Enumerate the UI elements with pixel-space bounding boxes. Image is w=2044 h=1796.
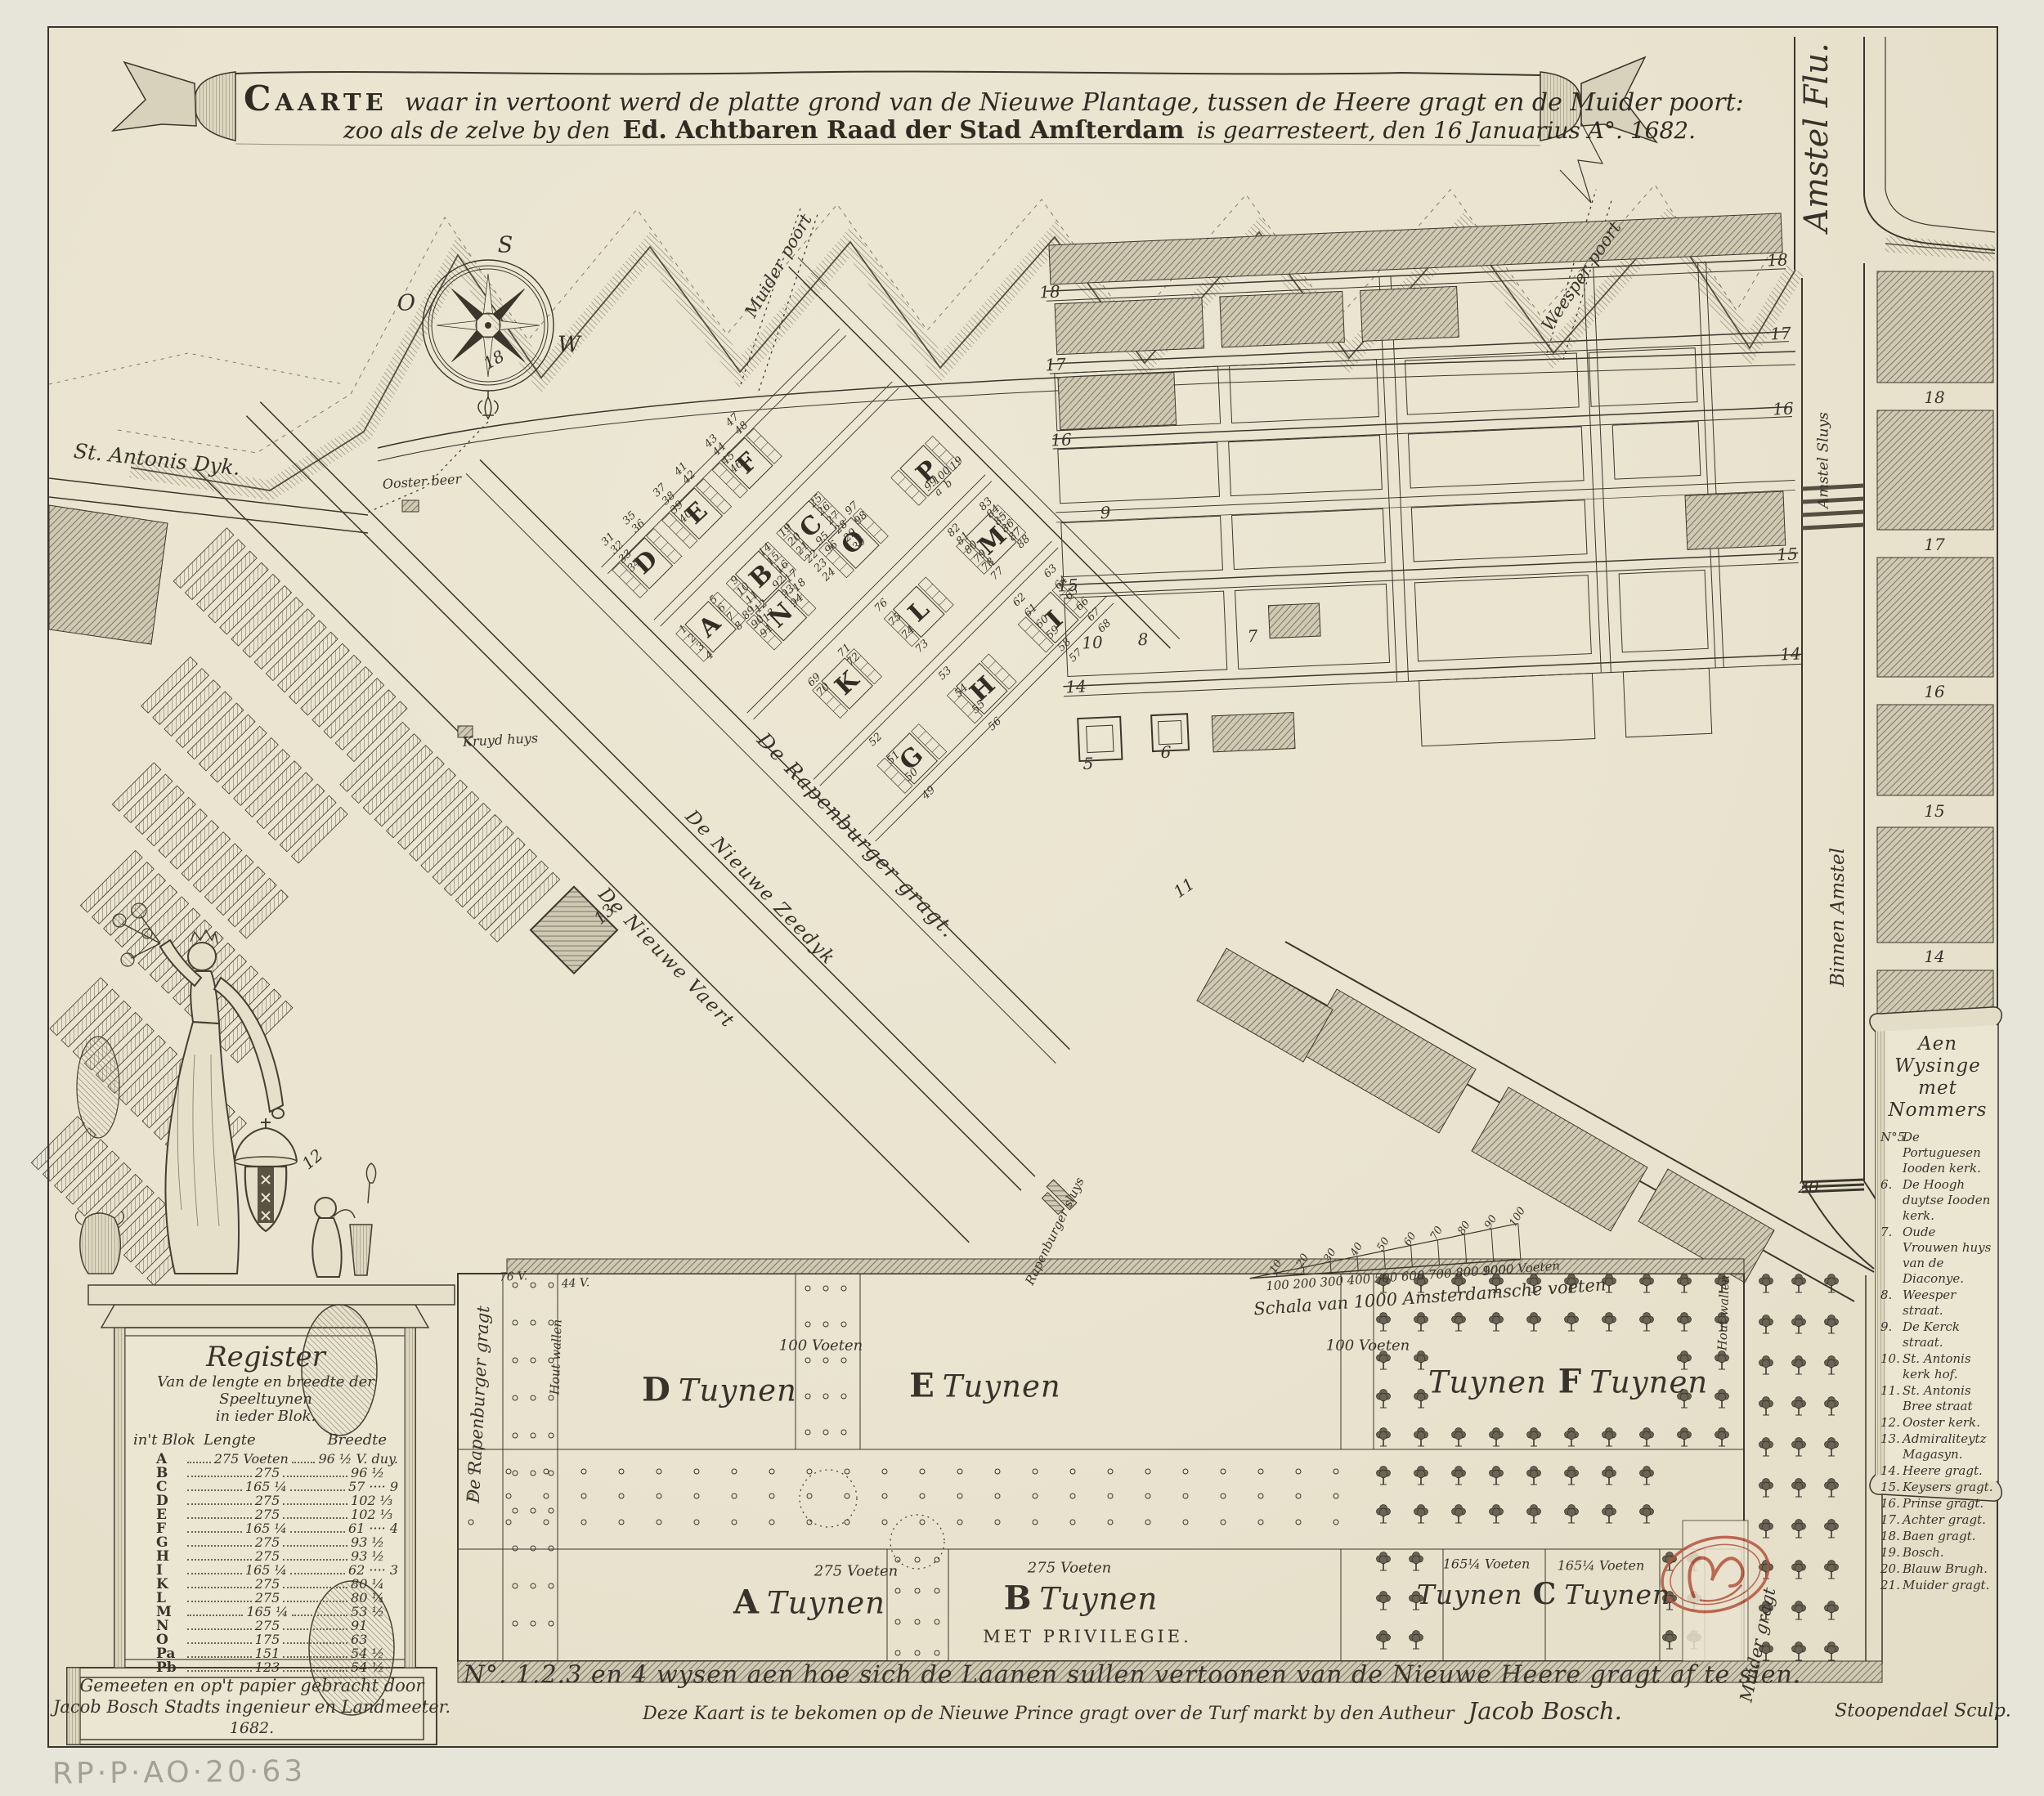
street-number: 14 [1780, 643, 1802, 664]
legend-item: N°5.De Portuguesen Iooden kerk. [1880, 1130, 1995, 1176]
scale-tick-label: 800 [1455, 1264, 1479, 1280]
title-line2-script-b: is gearresteert, den 16 Januarius A°. 16… [1197, 117, 1696, 144]
garden-a-letter: A [733, 1583, 759, 1622]
register-row: D275102 ⅓ [133, 1494, 398, 1507]
street-number: 20 [1798, 1177, 1818, 1197]
register-row: K27580 ¼ [133, 1577, 398, 1591]
register-subtitle-1: Van de lengte en breedte der Speeltuynen [133, 1373, 398, 1408]
register-subtitle-2: in ieder Blok. [133, 1408, 398, 1425]
label-amstel-sluys: Amstel Sluys [1815, 412, 1832, 508]
street-number: 16 [1924, 682, 1944, 701]
sculptor-credit: Stoopendael Sculp. [1835, 1701, 2011, 1722]
street-number: 9 [1100, 503, 1111, 523]
legend-item: 6.De Hoogh duytse Iooden kerk. [1880, 1177, 1995, 1224]
register-row: Pb12354 ½ [133, 1660, 398, 1674]
measure-275voeten-b: 275 Voeten [1028, 1560, 1111, 1577]
engraved-map-sheet: Caarte waar in vertoont werd de platte g… [0, 0, 2044, 1796]
measure-100voeten-1: 100 Voeten [779, 1337, 863, 1355]
pedestal-inscription: Gemeeten en op't papier gebracht door Ja… [53, 1675, 450, 1739]
register-title: Register [133, 1341, 398, 1373]
street-number: 15 [1777, 544, 1799, 564]
garden-e-word: Tuynen [943, 1369, 1061, 1404]
register-row: I165 ¼62 ···· 3 [133, 1563, 398, 1577]
legend-title-1: Aen Wysinge [1880, 1033, 1995, 1077]
street-number: 18 [1039, 281, 1061, 302]
label-hout-wallen-right: Hout wallen [1715, 1274, 1732, 1350]
legend-item: 16.Prinse gragt. [1880, 1496, 1995, 1512]
legend-item: 17.Achter gragt. [1880, 1512, 1995, 1528]
register-row: F165 ¼61 ···· 4 [133, 1521, 398, 1535]
compass-letter-w: W [558, 333, 580, 358]
garden-a-tuynen: ATuynen [733, 1583, 885, 1622]
legend-item: 11.St. Antonis Bree straat [1880, 1383, 1995, 1414]
legend-item: 21.Muider gragt. [1880, 1578, 1995, 1593]
label-binnen-amstel: Binnen Amstel [1827, 848, 1849, 987]
garden-c-letter: C [1533, 1577, 1557, 1611]
garden-e-tuynen: ETuynen [909, 1367, 1060, 1405]
register-col-breedte: Breedte [302, 1431, 398, 1449]
legend-item: 19.Bosch. [1880, 1545, 1995, 1561]
scale-tick-label: 100 [1266, 1277, 1290, 1293]
street-number: 17 [1770, 323, 1792, 343]
map-title-line1: Caarte waar in vertoont werd de platte g… [244, 78, 1744, 119]
garden-a-word: Tuynen [767, 1586, 885, 1621]
map-title-line2: zoo als de zelve by den Ed. Achtbaren Ra… [343, 116, 1696, 145]
street-number: 10 [1082, 632, 1104, 652]
measure-44v: 44 V. [561, 1276, 589, 1291]
register-row: G27593 ½ [133, 1535, 398, 1549]
street-number: 18 [1767, 249, 1789, 270]
register-col-lengte: Lengte [204, 1431, 302, 1449]
label-hout-wallen-left: Hout wallen [547, 1319, 564, 1395]
street-number: 15 [1924, 801, 1944, 821]
register-header: in't Blok Lengte Breedte [133, 1431, 398, 1449]
garden-c-tuynen: TuynenCTuynen [1417, 1577, 1671, 1611]
register-row: H27593 ½ [133, 1549, 398, 1563]
register-row: N27591 [133, 1619, 398, 1633]
register-row: B27596 ½ [133, 1466, 398, 1480]
street-number: 18 [1924, 387, 1944, 407]
scale-tick-label: 300 [1320, 1274, 1344, 1290]
register-row: C165 ¼57 ···· 9 [133, 1480, 398, 1494]
street-number: 14 [1065, 676, 1087, 696]
measure-275voeten-a: 275 Voeten [814, 1563, 898, 1580]
title-line2-script-a: zoo als de zelve by den [343, 117, 610, 144]
register-row: L27580 ¼ [133, 1591, 398, 1605]
register-rows: A275 Voeten96 ½ V. duy.B27596 ½C165 ¼57 … [133, 1452, 398, 1674]
compass-letter-s: S [498, 233, 513, 258]
inventory-number-handwritten: RP·P·AO·20·63 [52, 1754, 307, 1790]
compass-letter-o: O [397, 291, 415, 316]
register-panel: Register Van de lengte en breedte der Sp… [133, 1341, 398, 1674]
legend-item: 12.Ooster kerk. [1880, 1415, 1995, 1431]
garden-e-letter: E [909, 1367, 935, 1405]
register-row: Pa15154 ½ [133, 1646, 398, 1660]
street-number: 17 [1045, 354, 1067, 374]
legend-item: 18.Baen gragt. [1880, 1529, 1995, 1544]
register-row: A275 Voeten96 ½ V. duy. [133, 1452, 398, 1466]
street-number: 5 [1083, 754, 1094, 773]
bottom-caption-line2-text: Deze Kaart is te bekomen op de Nieuwe Pr… [643, 1704, 1454, 1724]
legend-item: 10.St. Antonis kerk hof. [1880, 1351, 1995, 1382]
legend-item: 7.Oude Vrouwen huys van de Diaconye. [1880, 1225, 1995, 1287]
bottom-caption-line2: Deze Kaart is te bekomen op de Nieuwe Pr… [643, 1697, 1622, 1725]
title-line1-text: waar in vertoont werd de platte grond va… [405, 88, 1744, 117]
scale-tick-label: 500 [1374, 1270, 1398, 1286]
register-row: E275102 ⅓ [133, 1507, 398, 1521]
street-number: 16 [1051, 429, 1073, 450]
pedestal-inscription-year: 1682. [53, 1718, 450, 1739]
title-line2-roman: Ed. Achtbaren Raad der Stad Amſterdam [623, 116, 1185, 145]
legend-title-2: met Nommers [1880, 1077, 1995, 1122]
register-col-blok: in't Blok [133, 1431, 204, 1449]
street-number: 7 [1247, 626, 1258, 647]
garden-c-word: Tuynen [1564, 1579, 1670, 1610]
scale-tick-label: 700 [1428, 1266, 1452, 1283]
garden-f-tuynen: TuynenFTuynen [1428, 1363, 1708, 1401]
garden-privilege-note: MET PRIVILEGIE. [983, 1627, 1192, 1646]
scale-tick-label: 200 [1293, 1275, 1317, 1292]
pedestal-inscription-line1: Gemeeten en op't papier gebracht door [53, 1675, 450, 1696]
garden-f-pre-word: Tuynen [1428, 1365, 1547, 1400]
measure-165voeten-1: 165¼ Voeten [1443, 1556, 1531, 1572]
label-amstel-river: Amstel Flu. [1798, 43, 1836, 232]
garden-d-tuynen: DTuynen [642, 1371, 797, 1409]
legend-item: 14.Heere gragt. [1880, 1463, 1995, 1479]
legend-item: 20.Blauw Brugh. [1880, 1561, 1995, 1577]
legend-item: 9.De Kerck straat. [1880, 1319, 1995, 1350]
garden-d-word: Tuynen [679, 1373, 797, 1409]
pedestal-inscription-line2: Jacob Bosch Stadts ingenieur en Landmeet… [53, 1696, 450, 1718]
scale-tick-label: 600 [1401, 1268, 1425, 1284]
legend-panel: Aen Wysinge met Nommers N°5.De Portugues… [1880, 1033, 1995, 1593]
legend-item: 13.Admiraliteytz Magasyn. [1880, 1431, 1995, 1462]
street-number: 16 [1773, 398, 1795, 419]
street-number: 8 [1137, 629, 1149, 650]
street-number: 14 [1924, 947, 1944, 966]
legend-item: 8.Weesper straat. [1880, 1288, 1995, 1319]
garden-c-pre-word: Tuynen [1417, 1579, 1523, 1610]
measure-165voeten-2: 165¼ Voeten [1558, 1558, 1645, 1574]
measure-76v: 76 V. [499, 1270, 527, 1284]
bottom-caption-author: Jacob Bosch. [1468, 1697, 1622, 1725]
garden-f-word: Tuynen [1589, 1365, 1708, 1400]
garden-d-letter: D [642, 1371, 670, 1409]
street-number: 17 [1924, 535, 1944, 554]
register-row: O17563 [133, 1633, 398, 1646]
bottom-caption-line1: N°. 1.2.3 en 4 wysen aen hoe sich de Laa… [464, 1661, 1802, 1690]
garden-f-letter: F [1558, 1363, 1581, 1401]
legend-item: 15.Keysers gragt. [1880, 1480, 1995, 1495]
measure-100voeten-2: 100 Voeten [1326, 1337, 1410, 1355]
legend-list: N°5.De Portuguesen Iooden kerk.6.De Hoog… [1880, 1130, 1995, 1593]
title-word-caarte: Caarte [244, 78, 388, 119]
garden-b-letter: B [1004, 1579, 1032, 1618]
scale-tick-label: 400 [1347, 1271, 1371, 1288]
garden-b-word: Tuynen [1039, 1582, 1158, 1617]
garden-b-tuynen: BTuynen [1004, 1579, 1159, 1618]
street-number: 6 [1161, 742, 1172, 762]
register-row: M165 ¼53 ½ [133, 1605, 398, 1619]
